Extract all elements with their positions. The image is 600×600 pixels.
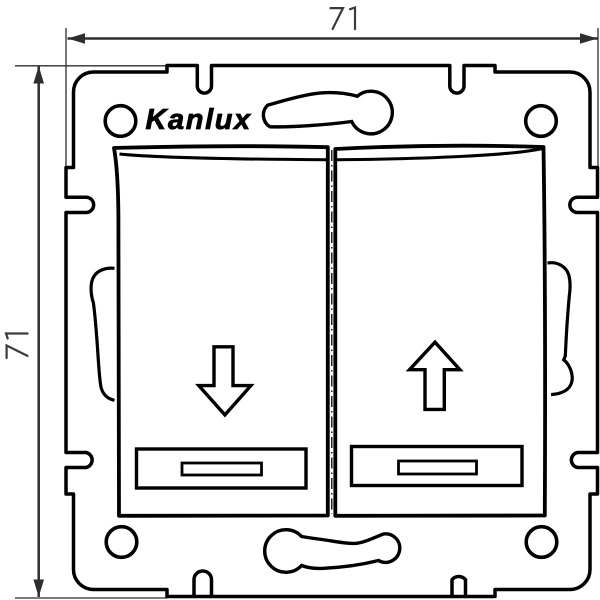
svg-text:Kanlux: Kanlux — [146, 104, 253, 136]
